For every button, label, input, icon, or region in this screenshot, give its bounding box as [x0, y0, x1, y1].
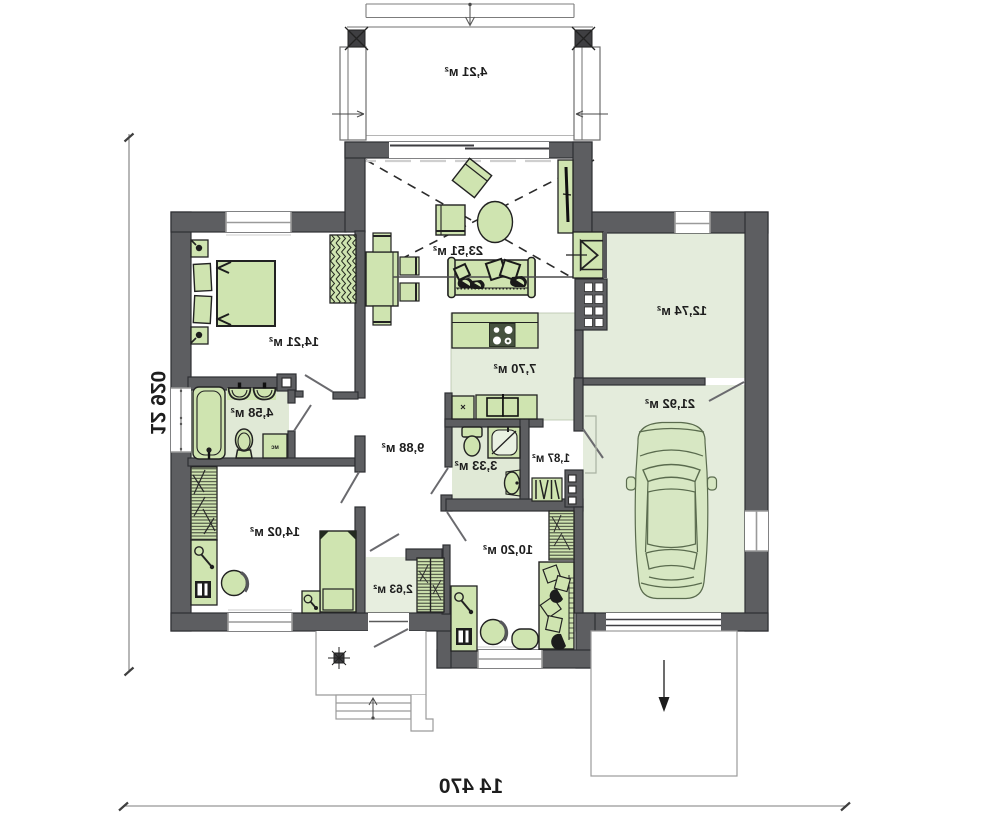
svg-text:14,02 м²: 14,02 м² [249, 524, 300, 539]
svg-text:14,21 м²: 14,21 м² [268, 334, 319, 349]
svg-text:4,58 м²: 4,58 м² [230, 405, 274, 420]
svg-text:10,20 м²: 10,20 м² [482, 542, 533, 557]
svg-text:4,21 м²: 4,21 м² [444, 64, 488, 79]
svg-text:12,74 м²: 12,74 м² [656, 303, 707, 318]
svg-text:7,70 м²: 7,70 м² [493, 361, 537, 376]
svg-text:14 470: 14 470 [439, 775, 503, 798]
svg-text:9,88 м²: 9,88 м² [381, 440, 425, 455]
svg-text:12 920: 12 920 [146, 371, 169, 435]
svg-text:23,51 м²: 23,51 м² [432, 243, 483, 258]
svg-text:1,87 м²: 1,87 м² [532, 453, 570, 465]
svg-text:мс: мс [270, 445, 278, 451]
svg-text:2,63 м²: 2,63 м² [373, 582, 413, 596]
svg-text:21,92 м²: 21,92 м² [644, 396, 695, 411]
svg-text:3,33 м²: 3,33 м² [454, 458, 498, 473]
